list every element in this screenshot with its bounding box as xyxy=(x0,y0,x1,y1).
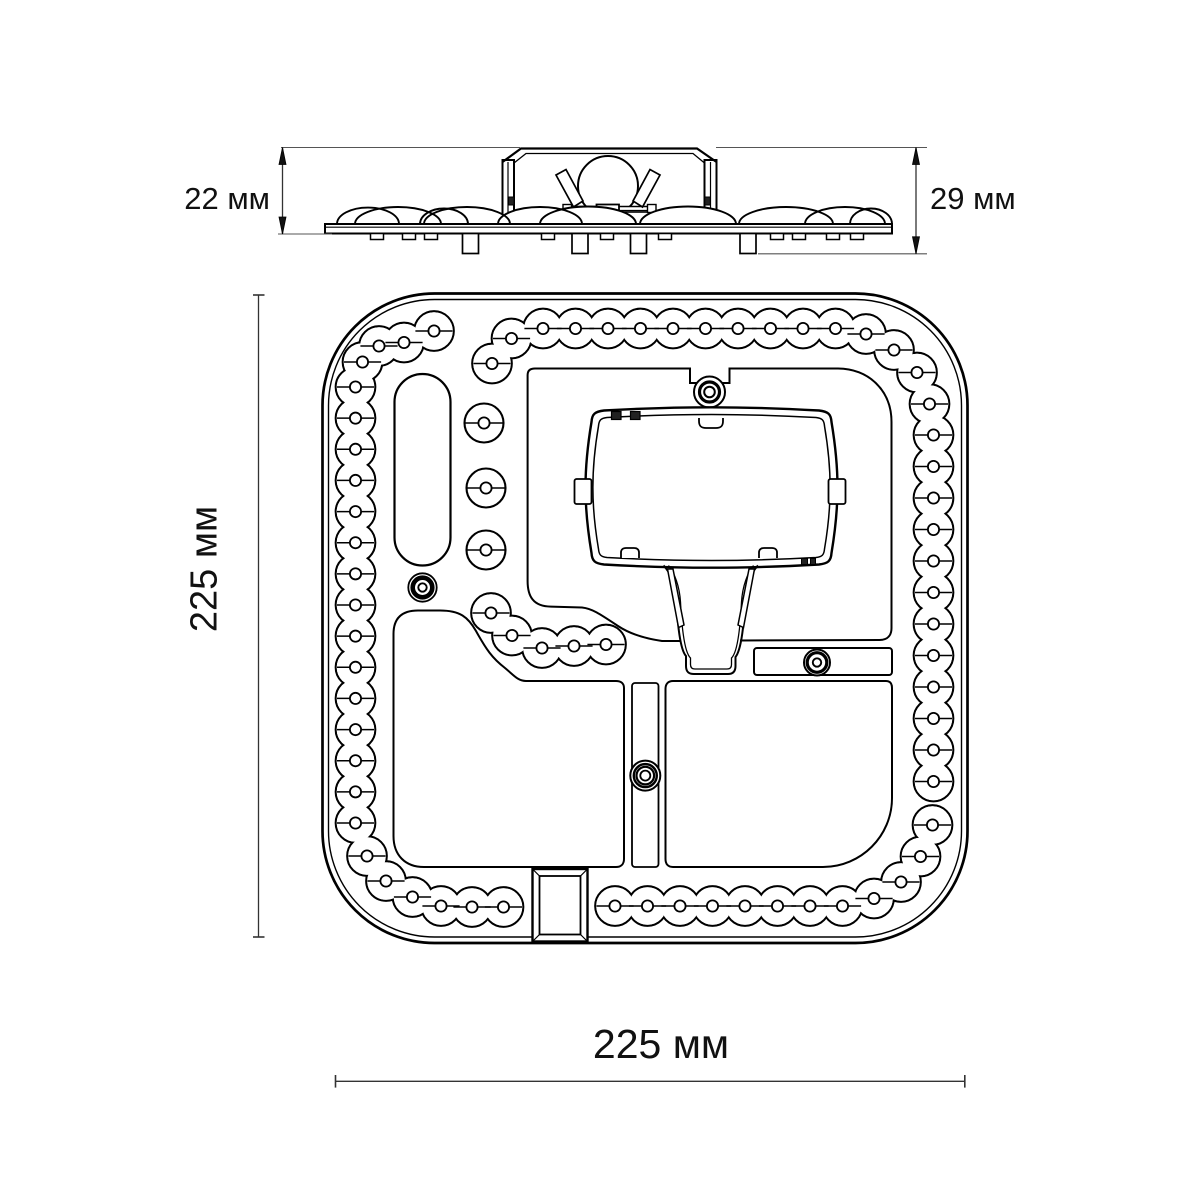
svg-text:225 мм: 225 мм xyxy=(593,1021,729,1067)
svg-text:29 мм: 29 мм xyxy=(930,181,1016,216)
svg-text:225 мм: 225 мм xyxy=(184,506,226,632)
svg-text:22 мм: 22 мм xyxy=(184,181,270,216)
